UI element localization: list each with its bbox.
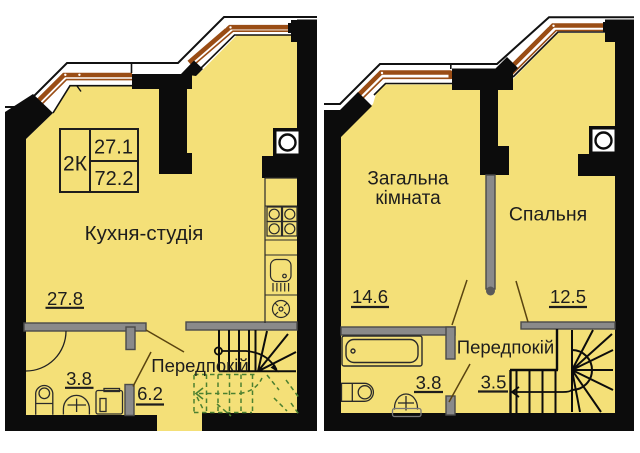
svg-text:14.6: 14.6 xyxy=(352,286,388,307)
svg-text:3.8: 3.8 xyxy=(66,368,92,389)
svg-text:27.8: 27.8 xyxy=(47,288,83,309)
svg-text:72.2: 72.2 xyxy=(95,168,134,190)
svg-text:3.8: 3.8 xyxy=(416,372,442,393)
svg-text:Загальна: Загальна xyxy=(367,169,449,190)
svg-text:27.1: 27.1 xyxy=(94,137,133,159)
svg-text:Спальня: Спальня xyxy=(509,204,587,226)
svg-text:2К: 2К xyxy=(63,153,88,176)
svg-text:6.2: 6.2 xyxy=(137,383,163,404)
svg-text:Передпокій: Передпокій xyxy=(457,337,554,358)
svg-text:Передпокій: Передпокій xyxy=(151,355,248,376)
svg-text:Кухня-студія: Кухня-студія xyxy=(85,222,204,245)
svg-text:3.5: 3.5 xyxy=(481,372,507,393)
svg-text:12.5: 12.5 xyxy=(550,286,586,307)
svg-text:кімната: кімната xyxy=(375,188,441,209)
